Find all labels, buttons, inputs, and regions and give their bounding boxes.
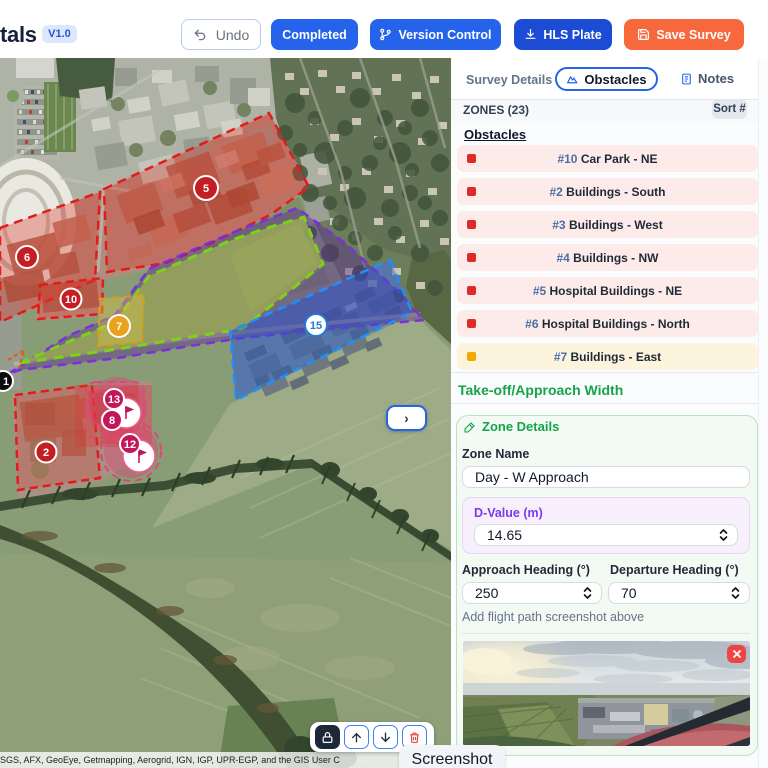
svg-text:6: 6 xyxy=(24,252,30,264)
svg-text:12: 12 xyxy=(124,439,136,451)
svg-text:5: 5 xyxy=(203,183,209,195)
svg-text:15: 15 xyxy=(310,320,322,332)
svg-text:8: 8 xyxy=(109,415,115,427)
svg-text:13: 13 xyxy=(108,394,120,406)
svg-text:1: 1 xyxy=(3,376,9,388)
svg-text:7: 7 xyxy=(116,321,122,333)
svg-text:10: 10 xyxy=(65,294,77,306)
svg-text:2: 2 xyxy=(43,447,49,459)
